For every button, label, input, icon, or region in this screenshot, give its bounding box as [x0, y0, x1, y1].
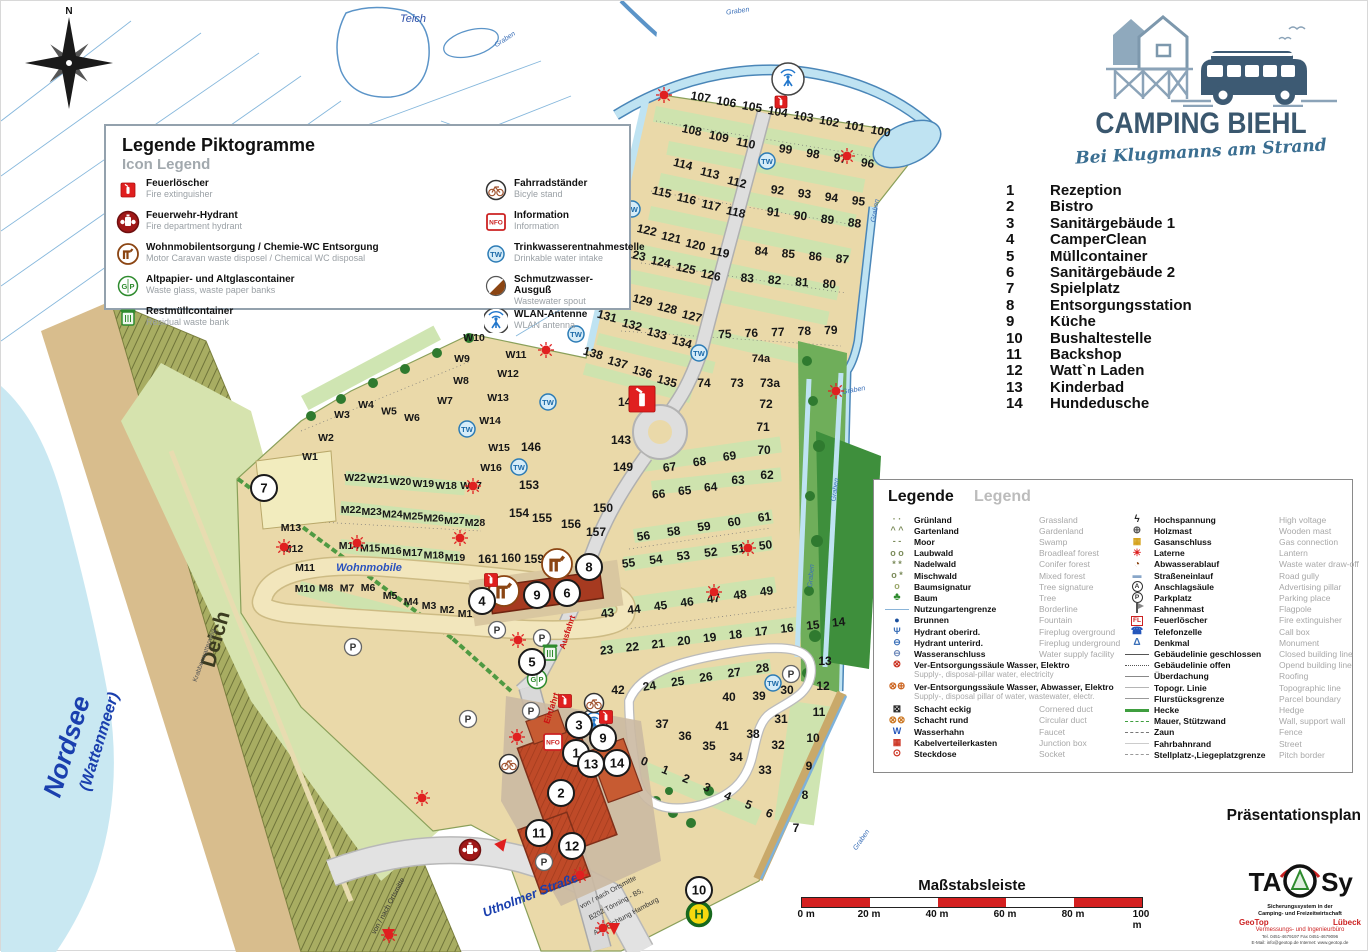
spout-icon	[484, 274, 514, 303]
legend-label-en: Topographic line	[1279, 683, 1341, 693]
icon-legend-entry: Wohnmobilentsorgung / Chemie-WC Entsorgu…	[116, 242, 386, 271]
legend-label-de: Mischwald	[914, 571, 1039, 581]
pitch-label: 82	[767, 273, 782, 288]
legend-label-de: Ver-Entsorgungssäule Wasser, Abwasser, E…	[914, 682, 1144, 692]
facility-number: 10	[1006, 331, 1050, 347]
pitch-label: M1	[458, 608, 473, 620]
pitch-label: M4	[404, 596, 419, 608]
pitch-label: 43	[600, 605, 615, 621]
facility-marker-12: 12	[559, 833, 585, 859]
pitch-label: 63	[731, 473, 745, 487]
legend-label-en: Conifer forest	[1039, 559, 1090, 569]
brunnen-icon: ●	[880, 616, 914, 625]
pitch-label: 84	[754, 243, 769, 258]
tassy-city: Lübeck	[1333, 918, 1361, 927]
legend-entry: - -MoorSwamp	[880, 536, 1067, 547]
hydrant-icon	[116, 210, 146, 239]
svg-text:TW: TW	[542, 398, 555, 407]
parkplatz-icon: P	[1120, 592, 1154, 603]
scalebar: Maßstabsleiste 0 m20 m40 m60 m80 m100 m	[796, 877, 1148, 920]
facility-number: 9	[1006, 314, 1050, 330]
pitch-label: W7	[437, 395, 453, 407]
p-icon: P	[489, 622, 506, 639]
legend-label-en: Lantern	[1279, 548, 1308, 558]
pitch-label: W16	[480, 462, 502, 474]
pitch-label: M23	[361, 506, 382, 518]
ver1-icon: ⊗	[880, 660, 914, 669]
icon-legend-title: Legende Piktogramme	[122, 135, 629, 156]
legend-label-de: Trinkwasserentnahmestelle	[514, 242, 645, 253]
legend-label-en: Borderline	[1039, 604, 1078, 614]
pitch-label: 154	[509, 506, 529, 520]
legend-label-en: Wall, support wall	[1279, 716, 1345, 726]
legend-label-en: Monument	[1279, 638, 1319, 648]
logo-block: CAMPING BIEHL Bei Klugmanns am Strand	[1041, 7, 1361, 162]
facility-marker-3: 3	[566, 712, 592, 738]
pitch-label: 61	[757, 509, 772, 525]
pitch-label: 153	[519, 478, 539, 492]
fahrbahn-icon	[1120, 739, 1154, 748]
facility-list-item: 12Watt`n Laden	[1006, 363, 1336, 379]
zaun-icon	[1120, 728, 1154, 737]
legend-label-de: Gartenland	[914, 526, 1039, 536]
legend-label-en: Mixed forest	[1039, 571, 1085, 581]
tassy-line2: Camping- und Freizeitwirtschaft	[1239, 911, 1361, 918]
legend-label-en: Fence	[1279, 727, 1303, 737]
flur-icon	[1120, 694, 1154, 703]
legend-label-de: Mauer, Stützwand	[1154, 716, 1279, 726]
pitch-label: 70	[757, 443, 771, 457]
pitch-label: M26	[423, 513, 444, 525]
pitch-label: 66	[651, 486, 666, 501]
bin-icon	[116, 306, 146, 335]
reddot-icon	[595, 920, 611, 936]
legend-label-de: Ver-Entsorgungssäule Wasser, Elektro	[914, 660, 1144, 670]
pitch-label: 77	[771, 325, 785, 339]
pitch-label: 37	[655, 717, 669, 731]
icon-legend-subtitle: Icon Legend	[122, 156, 629, 173]
fe-icon	[600, 711, 613, 724]
disposal-icon	[542, 549, 572, 579]
legend-label-de: Abwasserablauf	[1154, 559, 1279, 569]
legend-label-en: Fire department hydrant	[146, 221, 242, 231]
moor-icon: - -	[880, 537, 914, 546]
pitch-label: W9	[454, 353, 470, 365]
facility-name: Hundedusche	[1050, 396, 1149, 412]
steckdose-icon: ⊙	[880, 749, 914, 758]
svg-text:P: P	[528, 707, 535, 718]
legend-label-en: Closed building line	[1279, 649, 1353, 659]
facility-list-item: 14Hundedusche	[1006, 396, 1336, 412]
pitch-label: 41	[715, 719, 729, 733]
fe-icon	[485, 574, 498, 587]
reddot-icon	[414, 790, 430, 806]
stellplatz-icon	[1120, 750, 1154, 759]
p-icon: P	[345, 639, 362, 656]
svg-text:4: 4	[478, 594, 486, 609]
pitch-label: 34	[729, 750, 743, 764]
pitch-label: M19	[445, 552, 466, 564]
pitch-label: 39	[752, 689, 766, 703]
legend-label-en: Parcel boundary	[1279, 694, 1341, 704]
svg-text:9: 9	[599, 731, 606, 746]
pitch-label: 94	[824, 190, 839, 206]
facility-marker-11: 11	[526, 820, 552, 846]
pitch-label: 93	[797, 186, 812, 202]
icon-legend-entry: NFOInformationInformation	[484, 210, 629, 239]
legend-label-de: Altpapier- und Altglascontainer	[146, 274, 295, 285]
pitch-label: 74	[697, 376, 711, 390]
svg-text:P: P	[539, 634, 546, 645]
legend-entry: ⊕HolzmastWooden mast	[1120, 525, 1331, 536]
gp-icon: G P	[116, 274, 146, 303]
legend-label-en: Road gully	[1279, 571, 1319, 581]
pitch-label: 155	[532, 511, 552, 525]
legend-entry: Gebäudelinie geschlossenClosed building …	[1120, 648, 1353, 659]
pitch-label: 65	[677, 483, 692, 498]
hsign-icon: H	[688, 903, 711, 926]
schacht-e-icon: ⊠	[880, 705, 914, 714]
tassy-logo-block: TA Sy Sicherungssystem in der Camping- u…	[1239, 853, 1361, 945]
legend-entry: AAnschlagsäuleAdvertising pillar	[1120, 581, 1341, 592]
legend-entry: NutzungartengrenzeBorderline	[880, 604, 1078, 615]
reddot-icon	[706, 584, 722, 600]
svg-text:TW: TW	[767, 679, 780, 688]
legend-label-de: Restmüllcontainer	[146, 306, 233, 317]
legend-entry: ^ ^GartenlandGardenland	[880, 525, 1083, 536]
tw-icon: TW	[459, 421, 475, 437]
legend-label-de: Fahnenmast	[1154, 604, 1279, 614]
legend-label-en: Pitch border	[1279, 750, 1325, 760]
facility-list-item: 8Entsorgungsstation	[1006, 298, 1336, 314]
legend-label-de: Wasserhahn	[914, 727, 1039, 737]
legend-entry: · ·GrünlandGrassland	[880, 514, 1078, 525]
facility-list-item: 7Spielplatz	[1006, 281, 1336, 297]
pitch-label: 149	[613, 460, 633, 474]
pitch-label: 81	[795, 275, 810, 290]
pitch-label: M2	[440, 604, 455, 616]
facility-marker-14: 14	[604, 750, 630, 776]
pitch-label: 22	[625, 639, 640, 654]
pitch-label: 53	[676, 548, 691, 564]
legend-label-de: Moor	[914, 537, 1039, 547]
svg-text:P: P	[541, 858, 548, 869]
svg-text:NFO: NFO	[546, 739, 560, 746]
legend-entry: Topogr. LinieTopographic line	[1120, 682, 1341, 693]
legend-label-de: Fahrradständer	[514, 178, 587, 189]
legend-entry: ☎TelefonzelleCall box	[1120, 626, 1310, 637]
facility-list-item: 6Sanitärgebäude 2	[1006, 265, 1336, 281]
wasseranschluss-icon: ⊖	[880, 649, 914, 658]
legend-label-en: Information	[514, 221, 569, 231]
pitch-label: 44	[627, 602, 642, 618]
pitch-label: 35	[702, 739, 716, 753]
legend-label-en: Circular duct	[1039, 715, 1087, 725]
facility-number: 5	[1006, 249, 1050, 265]
geb-ge-icon	[1120, 649, 1154, 658]
legend-label-de: Telefonzelle	[1154, 627, 1279, 637]
reddot-icon	[276, 539, 292, 555]
facility-marker-5: 5	[519, 649, 545, 675]
pitch-label: 72	[759, 397, 773, 411]
pitch-label: 20	[677, 633, 692, 648]
legend-entry: ⊖Hydrant unterird.Fireplug underground	[880, 637, 1120, 648]
legend-entry: * *NadelwaldConifer forest	[880, 559, 1090, 570]
pitch-label: 14	[831, 614, 846, 629]
pitch-label: 42	[611, 683, 625, 697]
svg-text:10: 10	[692, 883, 706, 898]
pitch-label: 11	[813, 705, 826, 719]
facility-number: 8	[1006, 298, 1050, 314]
reddot-icon	[839, 148, 855, 164]
svg-text:NFO: NFO	[489, 219, 503, 226]
pitch-label: 143	[611, 433, 631, 447]
facility-number: 13	[1006, 380, 1050, 396]
pitch-label: 7	[793, 821, 800, 835]
legend-entry: ΨHydrant oberird.Fireplug overground	[880, 626, 1115, 637]
legend-title: Legende	[888, 488, 954, 506]
svg-text:G P: G P	[122, 282, 135, 291]
legend-label-de: Gasanschluss	[1154, 537, 1279, 547]
plan-type-label: Präsentationsplan	[1211, 807, 1361, 825]
pitch-label: 32	[771, 738, 785, 752]
legend-entry: ΔDenkmalMonument	[1120, 637, 1319, 648]
facility-list-item: 5Müllcontainer	[1006, 249, 1336, 265]
legend-label-en: Waste glass, waste paper banks	[146, 285, 295, 295]
legend-entry: FlurstücksgrenzeParcel boundary	[1120, 693, 1341, 704]
pitch-label: 19	[702, 630, 717, 645]
icon-legend-entry: FahrradständerBicyle stand	[484, 178, 629, 207]
pitch-label: 86	[808, 249, 823, 264]
pitch-label: 85	[781, 246, 796, 261]
pitch-label: W20	[390, 476, 412, 488]
legend-entry: ⊖WasseranschlussWater supply facility	[880, 648, 1114, 659]
facility-list-item: 1Rezeption	[1006, 183, 1336, 199]
pitch-label: 45	[653, 598, 668, 614]
legend-label-en: Fountain	[1039, 615, 1072, 625]
pitch-label: 146	[521, 440, 541, 454]
svg-text:P: P	[465, 715, 472, 726]
legend-label-de: Hochspannung	[1154, 515, 1279, 525]
legend-entry: ⊗⊗Schacht rundCircular duct	[880, 715, 1087, 726]
pitch-label: 99	[778, 141, 794, 157]
wlan-icon	[484, 309, 514, 338]
legend-label-en: Roofing	[1279, 671, 1308, 681]
legend-label-en: Swamp	[1039, 537, 1067, 547]
facility-number: 11	[1006, 347, 1050, 363]
pitch-label: 24	[642, 678, 657, 694]
scalebar-tick: 60 m	[994, 909, 1017, 920]
facility-marker-9: 9	[524, 582, 550, 608]
legend-entry: oBaumsignaturTree signature	[880, 581, 1094, 592]
legend-label-en: Opend building line	[1279, 660, 1352, 670]
schacht-r-icon: ⊗⊗	[880, 716, 914, 725]
pitch-label: 78	[797, 324, 811, 338]
facility-name: Spielplatz	[1050, 281, 1120, 297]
pitch-label: 73a	[760, 376, 780, 390]
pitch-label: 49	[759, 583, 774, 599]
pitch-label: 12	[816, 679, 830, 693]
scalebar-segment	[802, 898, 870, 907]
hecke-icon	[1120, 705, 1154, 714]
pitch-label: 69	[722, 448, 737, 464]
legend-label-de: Gebäudelinie geschlossen	[1154, 649, 1279, 659]
pitch-label: W14	[479, 415, 501, 427]
pitch-label: 30	[780, 683, 794, 697]
pitch-label: M28	[465, 517, 486, 529]
legend-label-en: Cornered duct	[1039, 704, 1093, 714]
holzmast-icon: ⊕	[1120, 526, 1154, 535]
pitch-label: 15	[805, 617, 820, 632]
facility-name: Watt`n Laden	[1050, 363, 1144, 379]
svg-text:2: 2	[557, 786, 564, 801]
legend-label-en: Wooden mast	[1279, 526, 1331, 536]
facility-marker-9: 9	[590, 725, 616, 751]
legend-label-de: Gebäudelinie offen	[1154, 660, 1279, 670]
reddot-icon	[509, 729, 525, 745]
facility-name: Küche	[1050, 314, 1096, 330]
reddot-icon	[572, 867, 588, 883]
legend-entry: ⊗Ver-Entsorgungssäule Wasser, ElektroSup…	[880, 660, 1144, 680]
gas-icon: ▦	[1120, 537, 1154, 546]
fe-icon	[116, 178, 146, 207]
facility-name: Rezeption	[1050, 183, 1122, 199]
facility-name: CamperClean	[1050, 232, 1147, 248]
legend-label-en: Socket	[1039, 749, 1065, 759]
p-icon: P	[783, 666, 800, 683]
camping-biehl-site-plan: { "logo": {"title": "CAMPING BIEHL", "su…	[0, 0, 1368, 951]
info-icon: NFO	[484, 210, 514, 239]
pitch-label: 46	[680, 594, 695, 610]
pitch-label: 71	[756, 420, 770, 434]
svg-text:5: 5	[528, 655, 535, 670]
svg-text:TW: TW	[490, 250, 503, 259]
legend-label-de: Feuerlöscher	[1154, 615, 1279, 625]
legend-entry: ZaunFence	[1120, 727, 1303, 738]
pitch-label: W10	[463, 332, 485, 344]
facility-name: Müllcontainer	[1050, 249, 1148, 265]
pitch-label: 75	[718, 327, 732, 341]
pitch-label: M15	[360, 542, 381, 554]
geb-of-icon	[1120, 661, 1154, 670]
svg-text:P: P	[788, 670, 795, 681]
facility-list-item: 4CamperClean	[1006, 232, 1336, 248]
facility-name: Kinderbad	[1050, 380, 1124, 396]
facility-name: Entsorgungsstation	[1050, 298, 1192, 314]
svg-text:TW: TW	[513, 463, 526, 472]
legend-label-en: Bicyle stand	[514, 189, 587, 199]
pitch-label: 9	[806, 759, 813, 773]
legend-entry: o oLaubwaldBroadleaf forest	[880, 548, 1099, 559]
legend-label-de: Holzmast	[1154, 526, 1279, 536]
hydrant-o-icon: Ψ	[880, 627, 914, 636]
fahnenmast-icon	[1120, 603, 1154, 615]
pitch-label: 31	[774, 712, 788, 726]
pitch-label: M8	[319, 583, 334, 595]
legend-label-de: Schmutzwasser-Ausguß	[514, 274, 629, 296]
legend-label-de: Brunnen	[914, 615, 1039, 625]
legend-label-de: Schacht eckig	[914, 704, 1039, 714]
pitch-label: 27	[727, 665, 742, 681]
pitch-label: 83	[740, 271, 755, 286]
reddot-icon	[465, 478, 481, 494]
pitch-label: 60	[727, 514, 742, 530]
legend-label-en: Supply-, disposal-pillar water, electric…	[914, 670, 1144, 679]
scalebar-tick: 100 m	[1133, 909, 1150, 931]
pitch-label: W18	[435, 480, 457, 492]
legend-label-de: Überdachung	[1154, 671, 1279, 681]
pitch-label: W5	[381, 406, 397, 418]
legend-label-de: Denkmal	[1154, 638, 1279, 648]
legend-label-de: Nutzungartengrenze	[914, 604, 1039, 614]
icon-legend-panel: Legende Piktogramme Icon Legend Feuerlös…	[104, 124, 631, 310]
pitch-label: 55	[621, 555, 636, 571]
pitch-label: 68	[692, 454, 707, 470]
wlan-icon	[772, 63, 804, 95]
legend-label-en: Supply-, disposal pillar of water, waste…	[914, 692, 1144, 701]
grenze-icon	[880, 605, 914, 614]
svg-text:TW: TW	[693, 349, 706, 358]
nadelwald-icon: * *	[880, 560, 914, 569]
mischwald-icon: o *	[880, 571, 914, 580]
fe-icon	[775, 96, 787, 108]
pitch-label: W6	[404, 412, 420, 424]
legend-label-de: Anschlagsäule	[1154, 582, 1279, 592]
baum-icon: ♣	[880, 593, 914, 602]
kabel-icon: ▦	[880, 738, 914, 747]
icon-legend-entry: RestmüllcontainerResidual waste bank	[116, 306, 386, 335]
pitch-label: 10	[806, 731, 820, 745]
pitch-label: 90	[793, 208, 808, 224]
wasserhahn-icon: W	[880, 727, 914, 736]
abwasser-icon: ◔	[1120, 560, 1154, 569]
pitch-label: W12	[497, 368, 519, 380]
ueberdachung-icon	[1120, 672, 1154, 681]
legend-entry: ⊠Schacht eckigCornered duct	[880, 704, 1093, 715]
tassy-line3: Vermessungs- und Ingenieurbüro	[1239, 927, 1361, 934]
svg-text:TA: TA	[1249, 867, 1282, 897]
legend-entry: ◔AbwasserablaufWaste water draw-off	[1120, 559, 1359, 570]
p-icon: P	[536, 854, 553, 871]
facilities-list: 1Rezeption2Bistro3Sanitärgebäude 14Campe…	[1006, 183, 1336, 413]
legend-label-de: Hydrant unterird.	[914, 638, 1039, 648]
ver2-icon: ⊗⊕	[880, 682, 914, 691]
pitch-label: 33	[758, 763, 772, 777]
legend-label-de: Laterne	[1154, 548, 1279, 558]
fe-icon	[559, 695, 572, 708]
laubwald-icon: o o	[880, 549, 914, 558]
facility-number: 6	[1006, 265, 1050, 281]
pitch-label: 89	[820, 212, 835, 228]
pitch-label: W21	[367, 474, 389, 486]
legend-label-en: Tree	[1039, 593, 1056, 603]
icon-legend-entry: Schmutzwasser-AusgußWastewater spout	[484, 274, 629, 306]
legend-entry: o *MischwaldMixed forest	[880, 570, 1085, 581]
compass-rose: N	[25, 6, 113, 109]
p-icon: P	[460, 711, 477, 728]
scalebar-segment	[870, 898, 938, 907]
icon-legend-entry: TWTrinkwasserentnahmestelleDrinkable wat…	[484, 242, 629, 271]
legend-label-de: Feuerwehr-Hydrant	[146, 210, 242, 221]
legend-label-en: Fireplug underground	[1039, 638, 1120, 648]
pitch-label: W2	[318, 432, 334, 444]
logo-illustration	[1051, 7, 1351, 107]
pitch-label: 38	[746, 727, 760, 741]
pitch-label: 17	[754, 624, 769, 639]
legend-label-de: Flurstücksgrenze	[1154, 694, 1279, 704]
facility-number: 1	[1006, 183, 1050, 199]
facility-list-item: 11Backshop	[1006, 347, 1336, 363]
